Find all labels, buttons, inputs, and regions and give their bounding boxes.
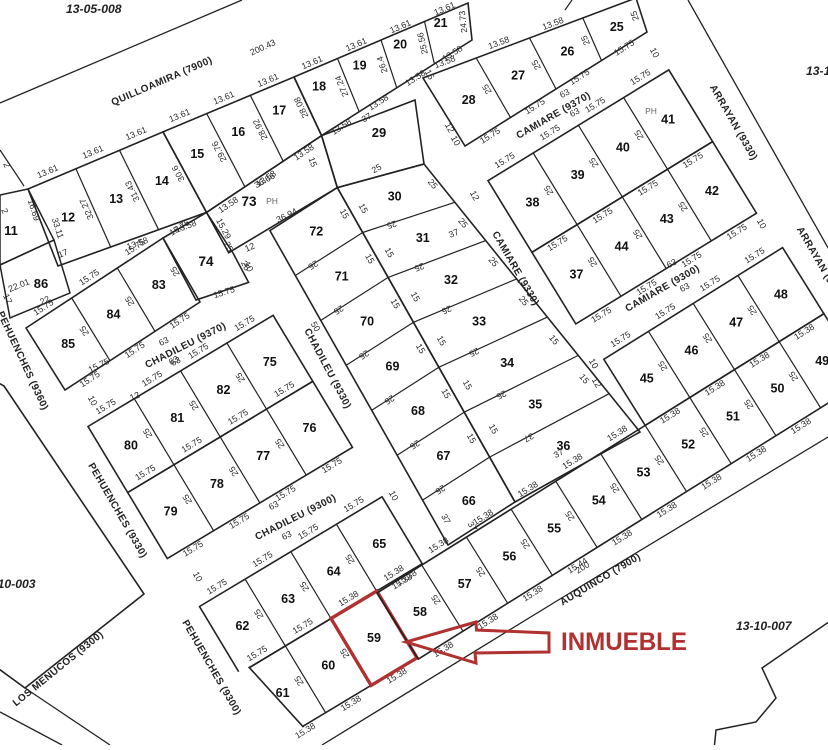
svg-text:82: 82 — [217, 383, 231, 397]
svg-text:39: 39 — [571, 168, 585, 182]
svg-text:64: 64 — [327, 564, 341, 578]
svg-text:16: 16 — [231, 125, 245, 139]
svg-text:72: 72 — [309, 225, 323, 239]
svg-text:50: 50 — [771, 382, 785, 396]
svg-text:86: 86 — [34, 276, 48, 291]
svg-text:44: 44 — [615, 240, 629, 254]
svg-text:47: 47 — [729, 316, 743, 330]
svg-text:69: 69 — [386, 359, 400, 373]
svg-text:78: 78 — [210, 477, 224, 491]
svg-text:42: 42 — [705, 184, 719, 198]
svg-text:80: 80 — [124, 439, 138, 453]
svg-text:56: 56 — [502, 549, 516, 563]
svg-text:37: 37 — [569, 267, 583, 281]
svg-text:35: 35 — [528, 398, 542, 412]
svg-text:19: 19 — [353, 59, 367, 73]
svg-text:70: 70 — [360, 314, 374, 328]
svg-text:77: 77 — [256, 449, 270, 463]
svg-text:48: 48 — [774, 288, 788, 302]
svg-text:55: 55 — [547, 521, 561, 535]
svg-text:32: 32 — [444, 273, 458, 287]
svg-text:17: 17 — [272, 103, 286, 117]
svg-text:58: 58 — [413, 605, 427, 619]
svg-text:PH: PH — [645, 106, 657, 116]
svg-text:65: 65 — [372, 537, 386, 551]
svg-text:85: 85 — [61, 337, 75, 351]
svg-text:76: 76 — [303, 421, 317, 435]
svg-text:13-10-003: 13-10-003 — [0, 577, 36, 591]
svg-text:62: 62 — [235, 619, 249, 633]
svg-text:81: 81 — [170, 411, 184, 425]
svg-text:43: 43 — [660, 212, 674, 226]
svg-text:20: 20 — [393, 37, 407, 51]
svg-text:46: 46 — [685, 344, 699, 358]
svg-text:12: 12 — [61, 211, 75, 225]
svg-text:13: 13 — [109, 192, 123, 206]
svg-text:66: 66 — [462, 494, 476, 508]
svg-text:71: 71 — [335, 270, 349, 284]
svg-text:53: 53 — [637, 466, 651, 480]
svg-text:13-10-007: 13-10-007 — [736, 619, 793, 633]
svg-text:60: 60 — [321, 659, 335, 673]
svg-text:13-1: 13-1 — [806, 64, 828, 78]
svg-text:52: 52 — [681, 438, 695, 452]
svg-text:15: 15 — [190, 147, 204, 161]
svg-text:21: 21 — [434, 16, 448, 30]
svg-text:73: 73 — [241, 194, 257, 209]
svg-text:54: 54 — [592, 493, 606, 507]
svg-text:51: 51 — [726, 410, 740, 424]
svg-text:75: 75 — [263, 355, 277, 369]
svg-text:28: 28 — [462, 93, 476, 107]
svg-text:79: 79 — [164, 505, 178, 519]
svg-text:84: 84 — [107, 308, 121, 322]
svg-text:29: 29 — [372, 125, 386, 140]
svg-text:74: 74 — [198, 254, 214, 269]
svg-text:68: 68 — [411, 404, 425, 418]
svg-text:30: 30 — [388, 190, 402, 204]
svg-text:49: 49 — [815, 354, 828, 368]
svg-text:PH: PH — [266, 196, 278, 206]
svg-text:63: 63 — [281, 592, 295, 606]
svg-text:INMUEBLE: INMUEBLE — [561, 628, 687, 656]
svg-text:14: 14 — [155, 174, 169, 188]
svg-text:41: 41 — [661, 113, 675, 127]
svg-text:26: 26 — [560, 44, 574, 58]
svg-text:67: 67 — [436, 449, 450, 463]
svg-text:13-05-008: 13-05-008 — [66, 2, 122, 16]
svg-text:38: 38 — [526, 196, 540, 210]
svg-text:45: 45 — [640, 371, 654, 385]
svg-text:11: 11 — [4, 223, 18, 238]
svg-text:25: 25 — [610, 20, 624, 34]
svg-text:83: 83 — [152, 278, 166, 292]
svg-text:59: 59 — [367, 631, 381, 645]
svg-text:40: 40 — [616, 140, 630, 154]
svg-text:27: 27 — [511, 69, 525, 83]
svg-text:33: 33 — [472, 314, 486, 328]
svg-text:18: 18 — [312, 80, 326, 94]
svg-text:31: 31 — [416, 231, 430, 245]
svg-text:34: 34 — [500, 356, 514, 370]
svg-text:57: 57 — [458, 577, 472, 591]
